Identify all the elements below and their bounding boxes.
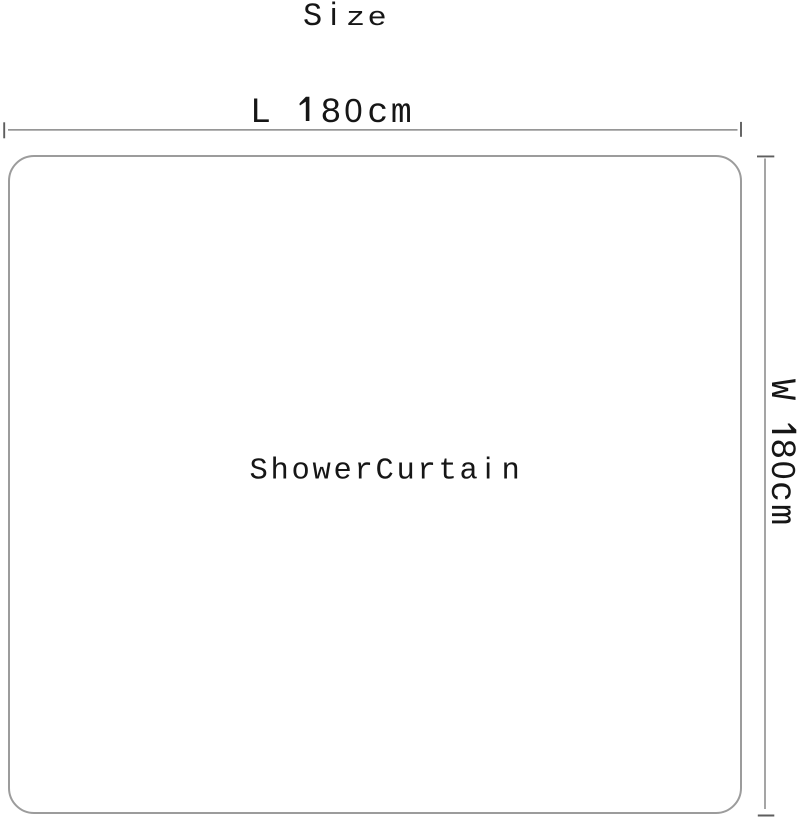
svg-text:0: 0 (765, 461, 802, 479)
svg-text:i: i (485, 452, 492, 486)
svg-text:L 8 cm: L 8 cm (250, 93, 414, 133)
svg-text:S: S (303, 0, 325, 35)
svg-text:0: 0 (344, 92, 362, 129)
svg-text:ze: ze (346, 2, 389, 33)
svg-text:ShowerCurta n: ShowerCurta n (250, 455, 523, 489)
svg-text:i: i (330, 0, 337, 32)
